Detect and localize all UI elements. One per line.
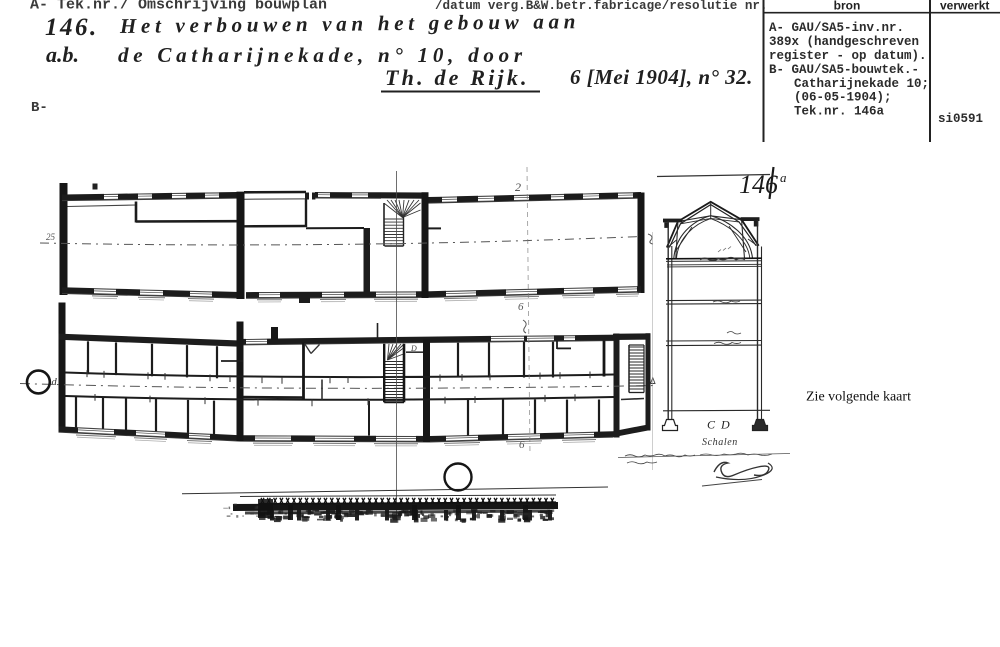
svg-text:a.b.: a.b.: [46, 42, 79, 67]
svg-text:de Catharijnekade, n° 10, door: de Catharijnekade, n° 10, door: [118, 43, 527, 67]
svg-text:verwerkt: verwerkt: [940, 0, 989, 13]
svg-text:D: D: [410, 344, 417, 353]
svg-text:6: 6: [518, 301, 524, 313]
svg-text:a: a: [780, 170, 787, 185]
svg-text:146.: 146.: [45, 14, 99, 41]
svg-text:A- GAU/SA5-inv.nr.: A- GAU/SA5-inv.nr.: [769, 21, 904, 35]
svg-text:B- GAU/SA5-bouwtek.-: B- GAU/SA5-bouwtek.-: [769, 63, 919, 77]
svg-text:389x (handgeschreven: 389x (handgeschreven: [769, 35, 919, 49]
svg-text:6: 6: [519, 439, 525, 451]
svg-text:Zie volgende kaart: Zie volgende kaart: [806, 390, 911, 405]
svg-text:Tek.nr. 146a: Tek.nr. 146a: [794, 105, 885, 119]
svg-text:Th. de Rijk.: Th. de Rijk.: [385, 65, 530, 90]
svg-text:2: 2: [515, 180, 521, 194]
svg-text:B-: B-: [31, 100, 48, 116]
svg-text:si0591: si0591: [938, 112, 983, 126]
svg-text:25: 25: [46, 232, 56, 242]
svg-text:(06-05-1904);: (06-05-1904);: [794, 91, 892, 105]
svg-text:6 [Mei 1904], n° 32.: 6 [Mei 1904], n° 32.: [570, 65, 753, 89]
svg-text:register - op datum).: register - op datum).: [769, 49, 927, 63]
svg-text:Schalen: Schalen: [702, 437, 738, 448]
svg-text:Het verbouwen van het gebouw a: Het verbouwen van het gebouw aan: [119, 9, 580, 38]
svg-text:Catharijnekade 10;: Catharijnekade 10;: [794, 77, 929, 91]
svg-text:bron: bron: [834, 0, 861, 13]
svg-text:d: d: [52, 377, 58, 388]
svg-text:C D: C D: [707, 418, 731, 432]
